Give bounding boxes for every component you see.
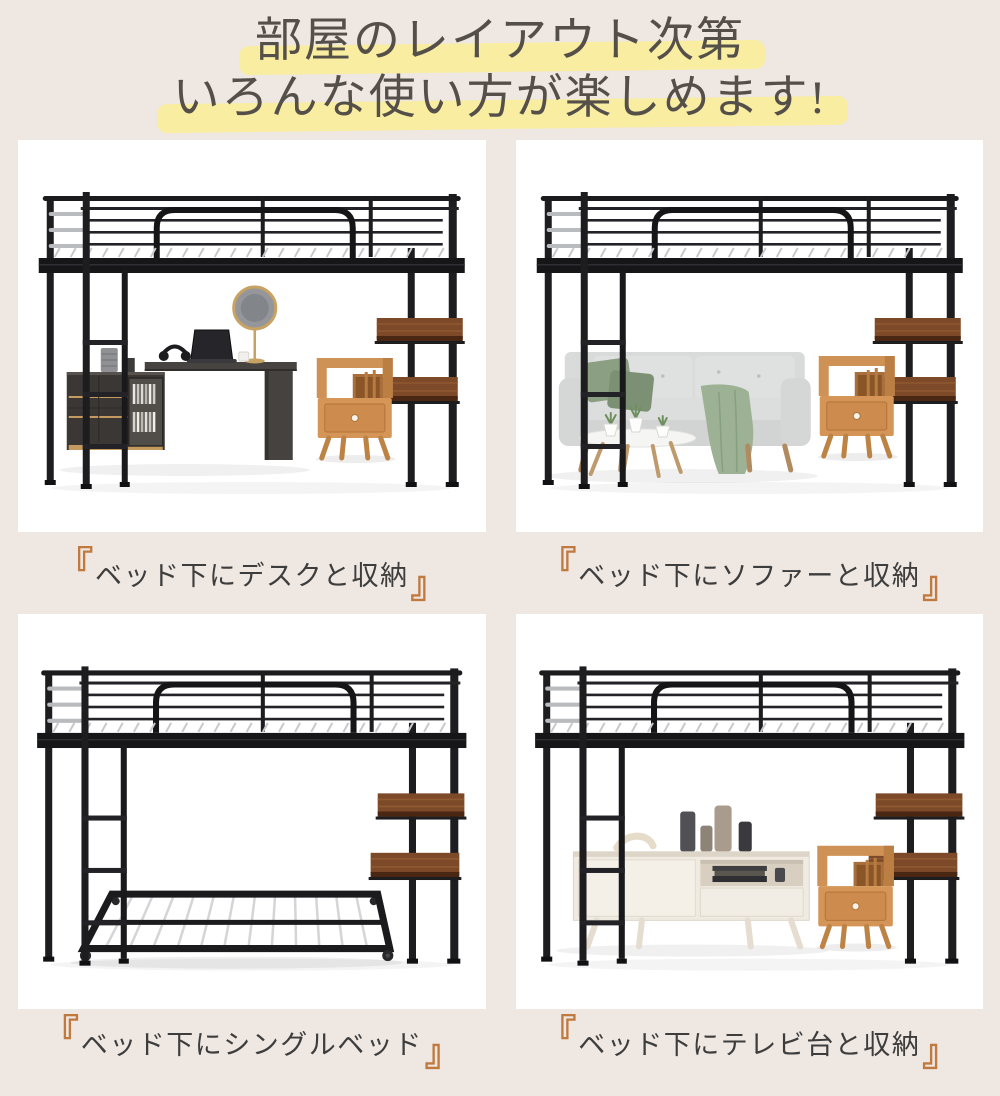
caption-bracket-close-icon: 』	[922, 1035, 958, 1071]
caption-bracket-open-icon: 『	[43, 1015, 79, 1051]
caption-bracket-open-icon: 『	[57, 547, 93, 583]
caption-text-sofa: ベッド下にソファーと収納	[578, 554, 920, 593]
page-title: 部屋のレイアウト次第 いろんな使い方が楽しめます!	[0, 13, 1000, 127]
loft-bed-single-bed-illustration	[18, 614, 486, 1009]
panel-photo-single-bed	[18, 614, 486, 1009]
panel-sofa: 『 ベッド下にソファーと収納 』	[516, 140, 984, 614]
sofa-and-storage-scene	[547, 352, 897, 483]
panel-photo-sofa	[516, 140, 984, 532]
panel-grid: 『 ベッド下にデスクと収納 』	[0, 140, 1000, 1096]
loft-bed-sofa-illustration	[516, 140, 984, 532]
loft-bed-desk-illustration	[18, 140, 486, 532]
caption-bracket-close-icon: 』	[411, 567, 447, 603]
caption-bracket-open-icon: 『	[540, 547, 576, 583]
tv-stand-scene	[556, 805, 897, 956]
header: 部屋のレイアウト次第 いろんな使い方が楽しめます!	[0, 0, 1000, 140]
caption-sofa: 『 ベッド下にソファーと収納 』	[516, 532, 984, 614]
caption-tv-stand: 『 ベッド下にテレビ台と収納 』	[516, 1009, 984, 1096]
caption-text-single-bed: ベッド下にシングルベッド	[81, 1023, 423, 1062]
caption-bracket-close-icon: 』	[922, 567, 958, 603]
caption-bracket-close-icon: 』	[425, 1035, 461, 1071]
caption-desk: 『 ベッド下にデスクと収納 』	[18, 532, 486, 614]
page-title-line-2: いろんな使い方が楽しめます!	[165, 70, 836, 127]
caption-single-bed: 『 ベッド下にシングルベッド 』	[18, 1009, 486, 1096]
panel-desk: 『 ベッド下にデスクと収納 』	[18, 140, 486, 614]
panel-tv-stand: 『 ベッド下にテレビ台と収納 』	[516, 614, 984, 1096]
page-title-line-1: 部屋のレイアウト次第	[247, 13, 753, 70]
caption-text-tv-stand: ベッド下にテレビ台と収納	[578, 1023, 920, 1062]
caption-text-desk: ベッド下にデスクと収納	[95, 554, 409, 593]
panel-photo-desk	[18, 140, 486, 532]
panel-photo-tv-stand	[516, 614, 984, 1009]
panel-single-bed: 『 ベッド下にシングルベッド 』	[18, 614, 486, 1096]
caption-bracket-open-icon: 『	[540, 1015, 576, 1051]
promo-page: 部屋のレイアウト次第 いろんな使い方が楽しめます!	[0, 0, 1000, 1096]
single-bed-scene	[70, 894, 403, 969]
loft-bed-tv-stand-illustration	[516, 614, 984, 1009]
